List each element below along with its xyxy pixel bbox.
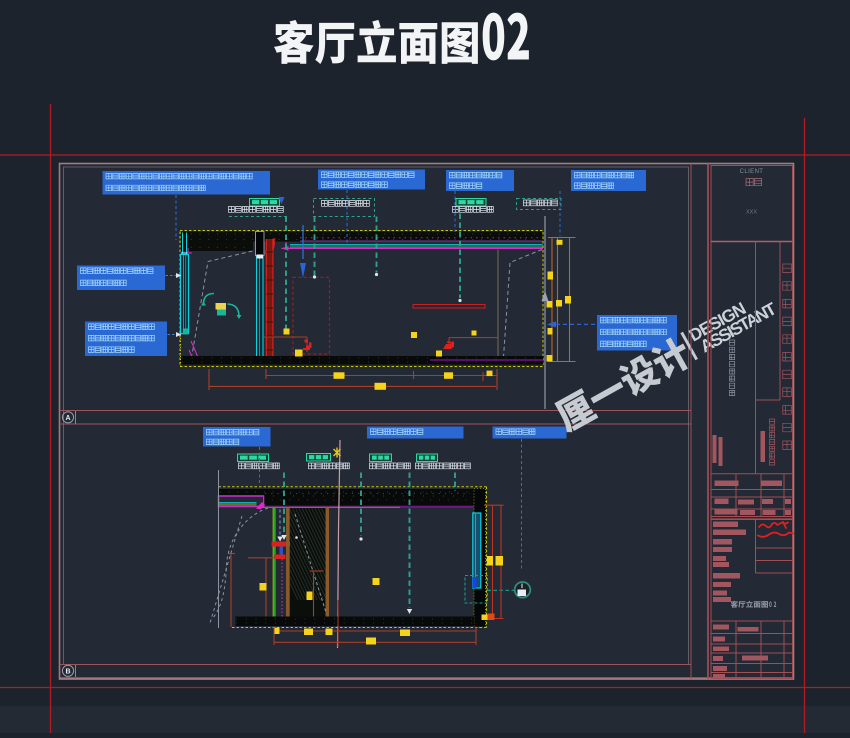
svg-text:XXX: XXX (746, 210, 757, 216)
svg-text:B: B (65, 669, 70, 676)
svg-text:CLIENT: CLIENT (740, 169, 764, 175)
svg-text:A: A (65, 415, 70, 422)
